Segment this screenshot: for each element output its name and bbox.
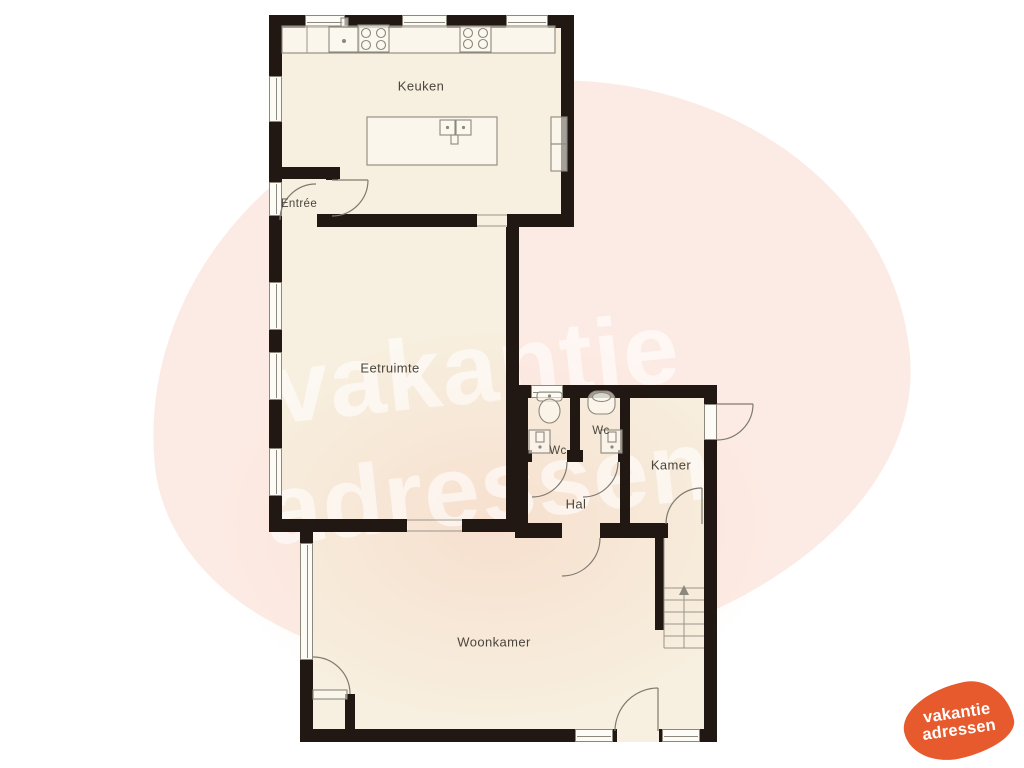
hob-dot <box>462 126 465 129</box>
stairs-direction-arrow <box>679 585 689 595</box>
toilet-bowl <box>539 399 560 423</box>
door-arc-hal <box>562 538 600 576</box>
kitchen-island <box>367 117 497 165</box>
floorplan-linework <box>0 0 1024 768</box>
room-label-entree: Entrée <box>281 198 317 210</box>
door-arc-terrace <box>615 688 658 731</box>
room-label-wc-right: Wc <box>592 425 609 437</box>
faucet-icon <box>341 18 348 27</box>
wc-basin-inner <box>593 393 611 402</box>
door-arc-wc-left <box>532 462 567 497</box>
room-label-woonkamer: Woonkamer <box>457 635 530 650</box>
open-passage-eetruimte-woonkamer <box>407 520 462 531</box>
sink-drain <box>610 445 613 448</box>
open-passage-kitchen-eetruimte <box>477 215 507 226</box>
cabinet <box>551 144 567 171</box>
sink-drain <box>538 445 541 448</box>
cabinet <box>551 117 567 144</box>
door-arc-closet <box>313 657 350 694</box>
hob-dot <box>446 126 449 129</box>
vakantieadressen-logo: vakantie adressen <box>899 682 1017 762</box>
flush-button <box>548 394 551 397</box>
island-handle <box>451 135 458 144</box>
closet-door-panel <box>313 690 347 699</box>
door-arc-entree-kitchen <box>332 180 368 216</box>
room-label-kamer: Kamer <box>651 458 691 473</box>
door-arc-wc-right <box>583 462 618 497</box>
floorplan-canvas: vakantie adressen <box>0 0 1024 768</box>
stairs <box>664 538 704 648</box>
kitchen-counter <box>282 26 555 53</box>
room-label-keuken: Keuken <box>398 79 445 94</box>
logo-text: vakantie adressen <box>894 674 1022 768</box>
sink-drain <box>342 39 346 43</box>
room-label-eetruimte: Eetruimte <box>360 361 419 376</box>
room-label-hal: Hal <box>566 497 587 512</box>
door-arc-kamer-stairs <box>666 488 702 524</box>
room-label-wc-left: Wc <box>549 445 566 457</box>
door-arc-kamer-exterior <box>717 404 753 440</box>
faucet-icon <box>536 432 544 442</box>
